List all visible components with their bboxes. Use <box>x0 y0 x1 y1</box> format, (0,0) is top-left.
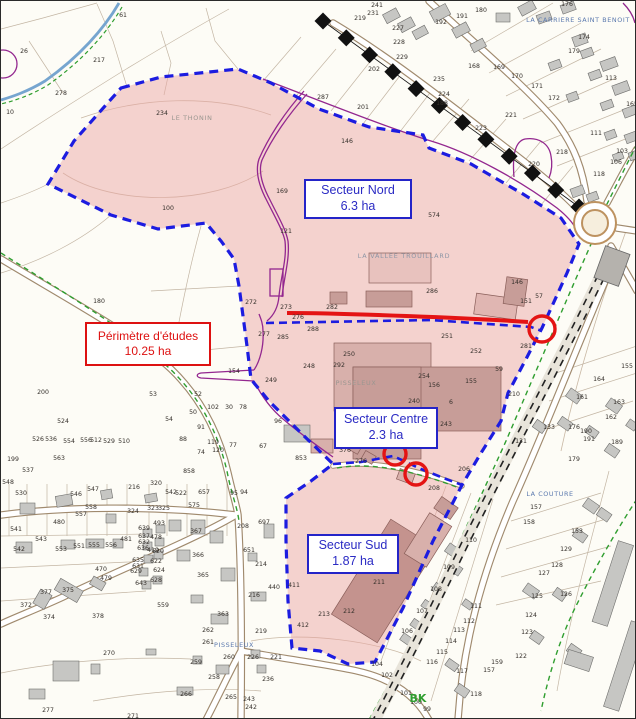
parcel-number: 116 <box>426 659 438 666</box>
parcel-number: 176 <box>568 424 580 431</box>
parcel-number: 169 <box>276 188 288 195</box>
parcel-number: 127 <box>538 570 550 577</box>
parcel-number: 163 <box>613 399 625 406</box>
parcel-number: 377 <box>40 589 52 596</box>
parcel-number: 217 <box>93 57 105 64</box>
parcel-number: 208 <box>428 485 440 492</box>
parcel-number: 114 <box>445 638 457 645</box>
parcel-number: 221 <box>270 654 282 661</box>
parcel-number: 440 <box>268 584 280 591</box>
parcel-number: 94 <box>240 489 248 496</box>
parcel-number: 169 <box>493 64 505 71</box>
place-name: LA COUTURE <box>526 490 573 498</box>
parcel-number: 286 <box>426 288 438 295</box>
parcel-number: 219 <box>255 628 267 635</box>
parcel-number: 164 <box>593 376 605 383</box>
parcel-number: 325 <box>158 505 170 512</box>
secteur-nord-name: Secteur Nord <box>321 183 395 199</box>
parcel-number: 131 <box>515 438 527 445</box>
parcel-number: 91 <box>197 424 205 431</box>
parcel-number: 190 <box>580 428 592 435</box>
parcel-number: 102 <box>381 672 393 679</box>
parcel-number: 285 <box>277 334 289 341</box>
parcel-number: 411 <box>288 582 300 589</box>
parcel-number: 478 <box>150 534 162 541</box>
parcel-number: 557 <box>75 511 87 518</box>
parcel-number: 201 <box>357 104 369 111</box>
parcel-number: 157 <box>530 504 542 511</box>
parcel-number: 213 <box>318 611 330 618</box>
parcel-number: 113 <box>453 627 465 634</box>
place-name: PISSELEUX <box>336 379 377 387</box>
parcel-number: 100 <box>162 205 174 212</box>
parcel-number: 231 <box>367 10 379 17</box>
parcel-number: 546 <box>70 491 82 498</box>
parcel-number: 240 <box>408 398 420 405</box>
parcel-number: 123 <box>521 629 533 636</box>
parcel-number: 53 <box>149 391 157 398</box>
parcel-number: 208 <box>237 523 249 530</box>
parcel-number: 657 <box>198 489 210 496</box>
parcel-number: 543 <box>35 536 47 543</box>
secteur-sud-label: Secteur Sud 1.87 ha <box>307 534 399 574</box>
parcel-number: 651 <box>243 547 255 554</box>
parcel-number: 470 <box>95 566 107 573</box>
parcel-number: 243 <box>243 696 255 703</box>
parcel-number: 480 <box>53 519 65 526</box>
parcel-number: 192 <box>435 19 447 26</box>
parcel-number: 106 <box>401 628 413 635</box>
parcel-number: 493 <box>153 520 165 527</box>
parcel-number: 107 <box>416 608 428 615</box>
parcel-number: 219 <box>354 15 366 22</box>
parcel-number: 106 <box>610 159 622 166</box>
parcel-number: 265 <box>225 694 237 701</box>
parcel-number: 479 <box>100 575 112 582</box>
parcel-number: 261 <box>202 639 214 646</box>
parcel-number: 551 <box>73 543 85 550</box>
parcel-number: 172 <box>548 95 560 102</box>
parcel-number: 155 <box>465 378 477 385</box>
parcel-number: 168 <box>468 63 480 70</box>
parcel-number: 254 <box>418 373 430 380</box>
parcel-number: 52 <box>194 391 202 398</box>
parcel-number: 180 <box>475 7 487 14</box>
parcel-number: 242 <box>245 704 257 711</box>
parcel-number: 124 <box>525 612 537 619</box>
parcel-number: 262 <box>202 627 214 634</box>
parcel-number: 99 <box>423 706 431 713</box>
parcel-number: 189 <box>611 439 623 446</box>
parcel-number: 624 <box>153 567 165 574</box>
parcel-number: 629 <box>130 568 142 575</box>
parcel-number: 277 <box>42 707 54 714</box>
parcel-number: 287 <box>317 94 329 101</box>
place-name: LE THONIN <box>171 114 212 122</box>
parcel-number: 26 <box>20 48 28 55</box>
parcel-number: 554 <box>63 438 75 445</box>
parcel-number: 112 <box>463 618 475 625</box>
parcel-number: 234 <box>156 110 168 117</box>
parcel-number: 174 <box>578 34 590 41</box>
parcel-number: 171 <box>531 83 543 90</box>
parcel-number: 162 <box>605 414 617 421</box>
parcel-number: 524 <box>57 418 69 425</box>
parcel-number: 96 <box>274 418 282 425</box>
parcel-number: 146 <box>341 138 353 145</box>
parcel-number: 224 <box>438 91 450 98</box>
parcel-number: 109 <box>443 564 455 571</box>
secteur-centre-name: Secteur Centre <box>344 412 428 428</box>
parcel-number: 125 <box>531 593 543 600</box>
parcel-number: 260 <box>223 654 235 661</box>
parcel-number: 111 <box>590 130 602 137</box>
parcel-number: 151 <box>520 298 532 305</box>
parcel-number: 282 <box>326 304 338 311</box>
parcel-number: 273 <box>280 304 292 311</box>
parcel-number: 575 <box>188 502 200 509</box>
parcel-number: 57 <box>535 293 543 300</box>
parcel-number: 115 <box>436 649 448 656</box>
parcel-number: 191 <box>583 436 595 443</box>
secteur-sud-name: Secteur Sud <box>319 538 388 554</box>
roundabout <box>574 202 616 244</box>
parcel-number: 118 <box>470 691 482 698</box>
parcel-number: 252 <box>470 348 482 355</box>
parcel-number: 235 <box>433 76 445 83</box>
parcel-number: 221 <box>505 112 517 119</box>
parcel-number: 179 <box>568 456 580 463</box>
secteur-nord-label: Secteur Nord 6.3 ha <box>304 179 412 219</box>
parcel-number: 188 <box>436 100 448 107</box>
parcel-number: 276 <box>292 314 304 321</box>
parcel-number: 191 <box>456 13 468 20</box>
parcel-number: 161 <box>576 394 588 401</box>
parcel-number: 108 <box>430 586 442 593</box>
parcel-number: 6 <box>449 399 453 406</box>
parcel-number: 374 <box>43 614 55 621</box>
parcel-number: 553 <box>55 546 67 553</box>
parcel-number: 276 <box>355 458 367 465</box>
parcel-number: 697 <box>258 519 270 526</box>
parcel-number: 59 <box>495 366 503 373</box>
parcel-number: 155 <box>621 363 633 370</box>
parcel-number: 50 <box>189 409 197 416</box>
parcel-number: 266 <box>180 691 192 698</box>
cadastral-map: 6126217278102341001691211802002412312192… <box>0 0 636 719</box>
secteur-sud-area: 1.87 ha <box>332 554 374 570</box>
parcel-number: 365 <box>197 572 209 579</box>
parcel-number: 88 <box>179 436 187 443</box>
parcel-number: 643 <box>135 580 147 587</box>
parcel-number: 104 <box>371 661 383 668</box>
parcel-number: 555 <box>88 542 100 549</box>
parcel-number: 78 <box>239 404 247 411</box>
parcel-number: 236 <box>262 676 274 683</box>
parcel-number: 223 <box>475 125 487 132</box>
parcel-number: 216 <box>128 484 140 491</box>
parcel-number: 563 <box>53 455 65 462</box>
place-name: LA CARRIERE SAINT BENOIT <box>526 16 630 24</box>
parcel-number: 10 <box>6 109 14 116</box>
parcel-number: 559 <box>157 602 169 609</box>
parcel-number: 530 <box>15 490 27 497</box>
parcel-number: 229 <box>396 54 408 61</box>
perimetre-name: Périmètre d'études <box>98 329 198 344</box>
parcel-number: 243 <box>440 421 452 428</box>
parcel-number: 259 <box>190 659 202 666</box>
parcel-number: 270 <box>103 650 115 657</box>
parcel-number: 159 <box>491 659 503 666</box>
parcel-number: 241 <box>371 2 383 9</box>
parcel-number: 858 <box>183 468 195 475</box>
parcel-number: 216 <box>248 592 260 599</box>
parcel-number: 292 <box>333 362 345 369</box>
parcel-number: 510 <box>118 438 130 445</box>
parcel-number: 277 <box>258 331 270 338</box>
parcel-number: 210 <box>508 391 520 398</box>
parcel-number: 214 <box>255 561 267 568</box>
parcel-number: 129 <box>560 546 572 553</box>
parcel-number: 853 <box>295 455 307 462</box>
parcel-number: 146 <box>511 279 523 286</box>
parcel-number: 620 <box>152 548 164 555</box>
parcel-number: 157 <box>483 667 495 674</box>
parcel-number: 526 <box>32 436 44 443</box>
parcel-number: 110 <box>465 537 477 544</box>
parcel-number: 271 <box>127 713 139 719</box>
parcel-number: 180 <box>93 298 105 305</box>
perimetre-area: 10.25 ha <box>125 344 172 359</box>
parcel-number: 122 <box>515 653 527 660</box>
parcel-number: 165 <box>626 101 636 108</box>
parcel-number: 103 <box>616 148 628 155</box>
parcel-number: 95 <box>230 490 238 497</box>
parcel-number: 200 <box>37 389 49 396</box>
parcel-number: 574 <box>428 212 440 219</box>
parcel-number: 250 <box>343 351 355 358</box>
parcel-number: 133 <box>543 424 555 431</box>
parcel-number: 170 <box>511 73 523 80</box>
parcel-number: 74 <box>197 449 205 456</box>
parcel-number: 126 <box>560 591 572 598</box>
parcel-number: 113 <box>605 75 617 82</box>
parcel-number: 363 <box>217 611 229 618</box>
secteur-centre-area: 2.3 ha <box>369 428 404 444</box>
parcel-number: 372 <box>20 602 32 609</box>
parcel-number: 102 <box>207 404 219 411</box>
parcel-number: 536 <box>45 436 57 443</box>
parcel-number: 119 <box>207 439 219 446</box>
parcel-number: 278 <box>55 90 67 97</box>
parcel-number: 251 <box>441 333 453 340</box>
place-name: PISSELEUX <box>214 641 254 649</box>
railway-tie-icon <box>315 13 332 30</box>
parcel-number: 179 <box>568 48 580 55</box>
parcel-number: 156 <box>428 382 440 389</box>
parcel-number: 412 <box>297 622 309 629</box>
parcel-number: 556 <box>105 542 117 549</box>
place-name: BK <box>410 692 427 705</box>
parcel-number: 541 <box>10 526 22 533</box>
parcel-number: 258 <box>208 674 220 681</box>
parcel-number: 639 <box>138 525 150 532</box>
parcel-number: 367 <box>190 528 202 535</box>
parcel-number: 67 <box>259 443 267 450</box>
parcel-number: 228 <box>393 39 405 46</box>
parcel-number: 320 <box>150 480 162 487</box>
parcel-number: 366 <box>192 552 204 559</box>
parcel-number: 128 <box>551 562 563 569</box>
secteur-centre-label: Secteur Centre 2.3 ha <box>334 407 438 449</box>
parcel-number: 558 <box>85 504 97 511</box>
parcel-number: 54 <box>165 416 173 423</box>
perimetre-etudes-label: Périmètre d'études 10.25 ha <box>85 322 211 366</box>
place-name: LA VALLEE TROUILLARD <box>358 252 451 260</box>
parcel-number: 111 <box>470 603 482 610</box>
parcel-number: 176 <box>561 1 573 8</box>
secteur-nord-area: 6.3 ha <box>341 199 376 215</box>
parcel-number: 212 <box>343 608 355 615</box>
parcel-number: 226 <box>247 654 259 661</box>
parcel-number: 529 <box>103 438 115 445</box>
parcel-number: 548 <box>2 479 14 486</box>
parcel-number: 227 <box>392 25 404 32</box>
parcel-number: 481 <box>120 536 132 543</box>
parcel-number: 522 <box>175 490 187 497</box>
parcel-number: 158 <box>523 519 535 526</box>
parcel-number: 547 <box>87 486 99 493</box>
parcel-number: 281 <box>520 343 532 350</box>
parcel-number: 375 <box>62 587 74 594</box>
parcel-number: 199 <box>7 456 19 463</box>
parcel-number: 249 <box>265 377 277 384</box>
parcel-number: 30 <box>225 404 233 411</box>
parcel-number: 61 <box>119 12 127 19</box>
parcel-number: 628 <box>150 577 162 584</box>
parcel-number: 272 <box>245 299 257 306</box>
parcel-number: 378 <box>92 613 104 620</box>
parcel-number: 154 <box>228 368 240 375</box>
parcel-number: 211 <box>373 579 385 586</box>
parcel-number: 153 <box>571 528 583 535</box>
parcel-number: 622 <box>150 558 162 565</box>
parcel-number: 288 <box>307 326 319 333</box>
parcel-number: 220 <box>528 161 540 168</box>
parcel-number: 202 <box>368 66 380 73</box>
parcel-number: 117 <box>456 668 468 675</box>
parcel-number: 537 <box>22 467 34 474</box>
parcel-number: 77 <box>229 442 237 449</box>
parcel-number: 206 <box>458 466 470 473</box>
parcel-number: 118 <box>593 171 605 178</box>
parcel-number: 248 <box>303 363 315 370</box>
parcel-number: 324 <box>127 508 139 515</box>
parcel-number: 120 <box>212 447 224 454</box>
parcel-number: 121 <box>280 228 292 235</box>
parcel-number: 512 <box>90 437 102 444</box>
parcel-number: 218 <box>556 149 568 156</box>
parcel-number: 542 <box>13 546 25 553</box>
